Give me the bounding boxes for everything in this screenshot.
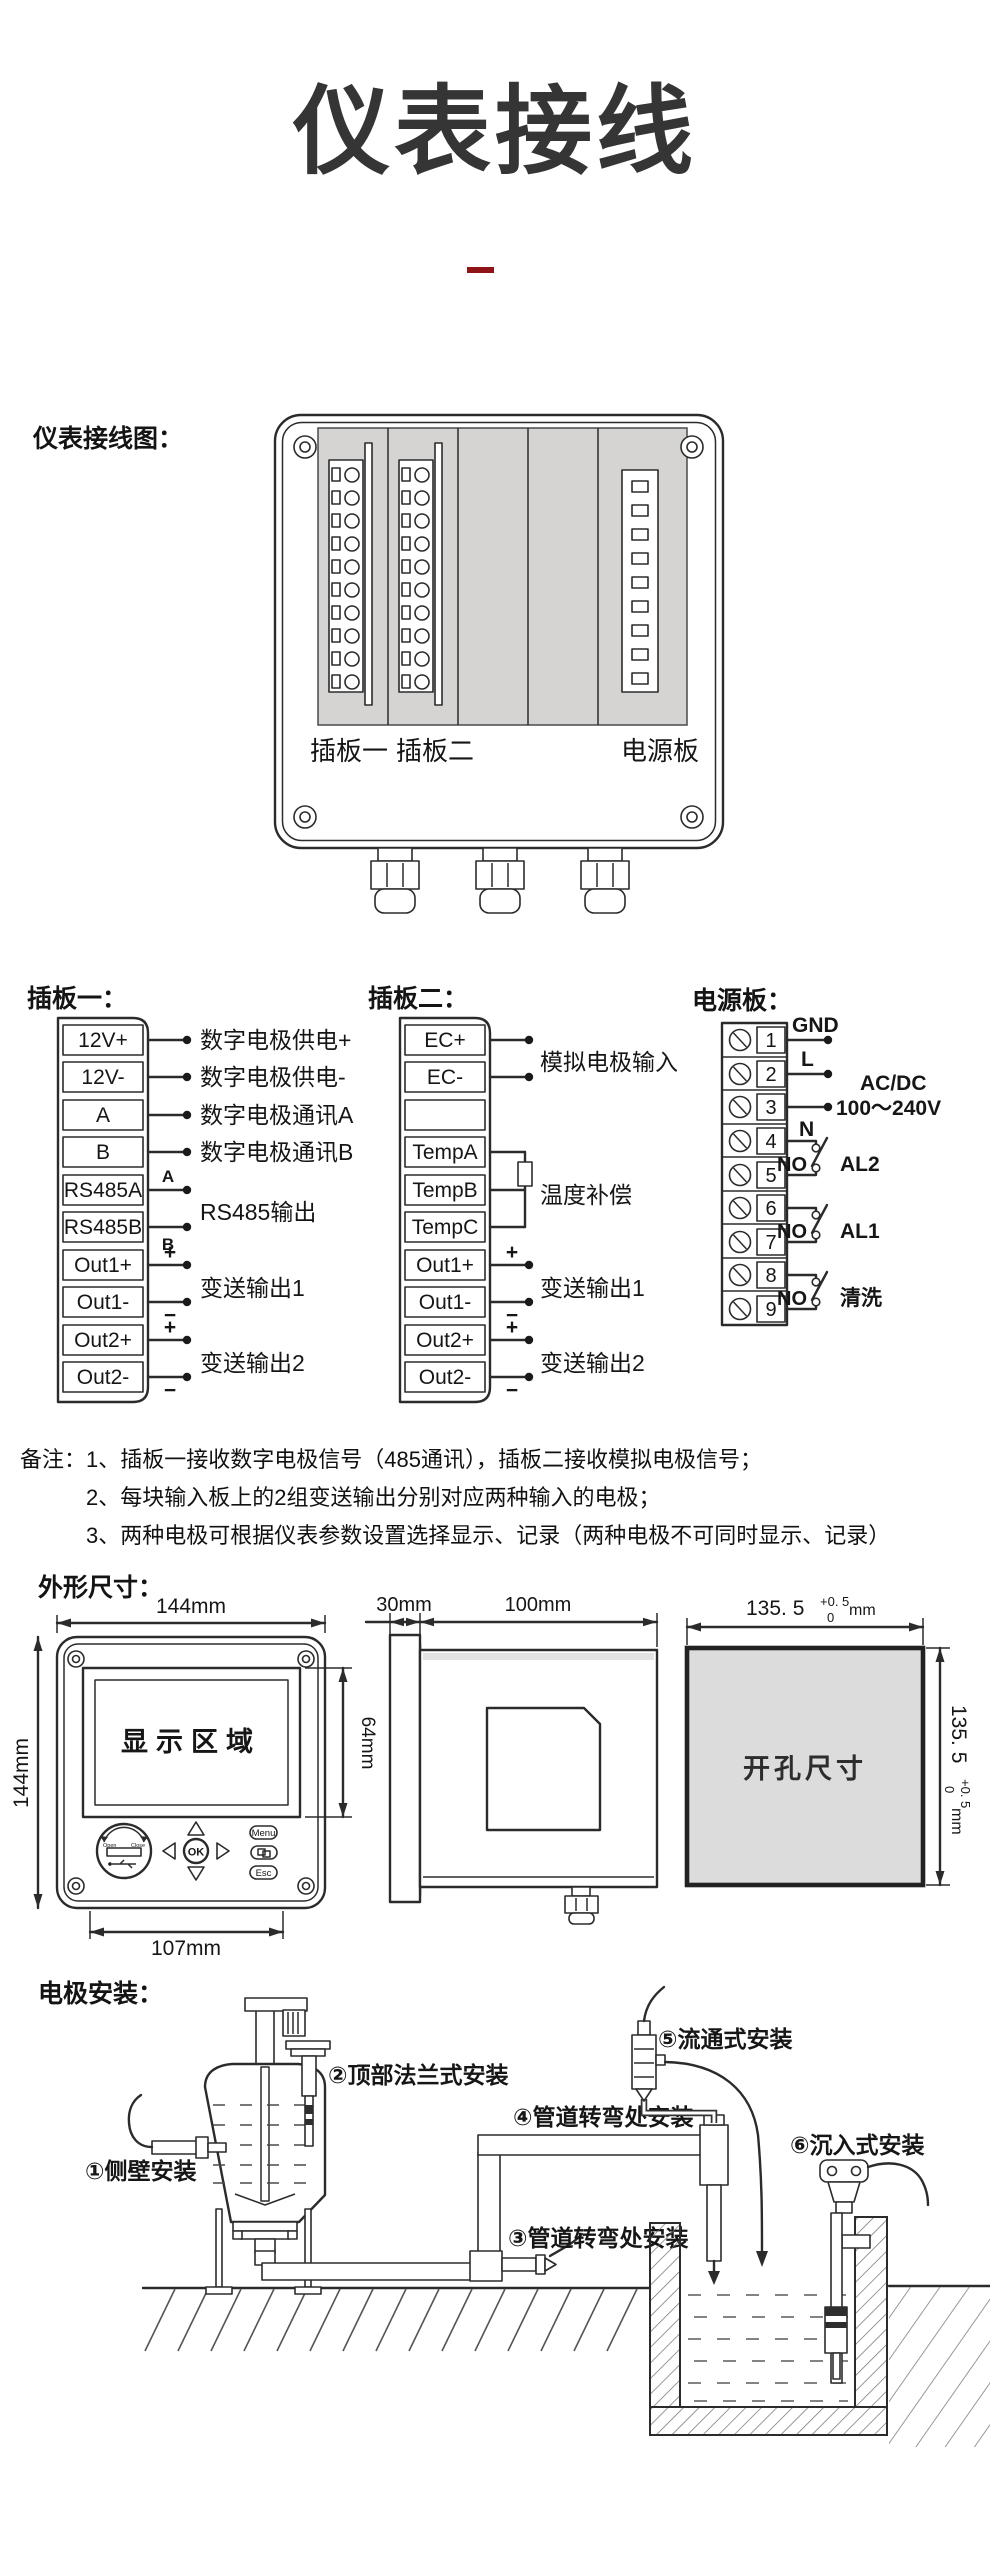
tolerance-zero: 0 xyxy=(942,1786,957,1793)
terminal-label: A xyxy=(96,1104,110,1127)
power-terminal-strip xyxy=(622,470,658,692)
front-view: 显示区域 OK Open Close Menu xyxy=(10,1595,378,1960)
note-line: 1、插板一接收数字电极信号（485通讯），插板二接收模拟电极信号； xyxy=(86,1441,762,1479)
gnd-label: GND xyxy=(792,1014,839,1037)
plus-marker: + xyxy=(506,1316,518,1339)
water xyxy=(688,2295,848,2401)
temp-compensation-resistor xyxy=(518,1162,532,1186)
ok-button-label: OK xyxy=(188,1847,205,1859)
cable xyxy=(644,1987,664,2021)
notes-head: 备注： xyxy=(20,1441,86,1479)
terminal-label: Out1+ xyxy=(74,1254,132,1277)
annotation: 数字电极供电- xyxy=(200,1064,346,1090)
menu-button-label: Menu xyxy=(252,1828,276,1839)
relay-al1: NO AL1 xyxy=(777,1205,880,1243)
annotation: 数字电极通讯B xyxy=(200,1139,353,1165)
usb-slot xyxy=(107,1848,141,1856)
board2-diagram: EC+ EC- TempA TempB TempC Out1+ Out1- Ou… xyxy=(400,1018,678,1402)
note-line: 3、两种电极可根据仪表参数设置选择显示、记录（两种电极不可同时显示、记录） xyxy=(86,1517,890,1555)
terminal-label: B xyxy=(96,1141,110,1164)
side-view: 30mm 100mm xyxy=(366,1594,657,1924)
cable-glands xyxy=(371,848,629,913)
title-accent-dash xyxy=(467,267,494,273)
cable xyxy=(868,2163,928,2205)
terminal-number: 9 xyxy=(765,1299,776,1321)
terminal-label: TempB xyxy=(412,1179,477,1202)
board1-diagram: 12V+ 12V- A B RS485A RS485B Out1+ Out1- … xyxy=(58,1018,354,1402)
terminal-label: Out2+ xyxy=(416,1329,474,1352)
width-dim: 144mm xyxy=(156,1595,226,1618)
terminal-number: 2 xyxy=(765,1064,776,1086)
bezel-dim: 30mm xyxy=(376,1594,432,1616)
terminal-number: 1 xyxy=(765,1030,776,1052)
tank-assembly xyxy=(205,1998,472,2294)
terminal-label: RS485B xyxy=(64,1216,142,1239)
note-line: 2、每块输入板上的2组变送输出分别对应两种输入的电极； xyxy=(86,1479,660,1517)
acdc-label: AC/DC xyxy=(860,1072,927,1095)
no-label: NO xyxy=(777,1288,807,1310)
installation-figure: ①侧壁安装 ②顶部法兰式安装 xyxy=(0,1955,990,2549)
wire-marker-a: A xyxy=(162,1167,174,1186)
slot1-label: 插板一 xyxy=(310,736,388,766)
terminal-label: 12V- xyxy=(81,1066,124,1089)
terminal-number: 6 xyxy=(765,1198,776,1220)
terminal-number: 8 xyxy=(765,1265,776,1287)
unit: mm xyxy=(948,1808,965,1835)
install-callout-6: ⑥沉入式安装 xyxy=(790,2132,924,2158)
no-label: NO xyxy=(777,1154,807,1176)
install-callout-4: ④管道转弯处安装 xyxy=(513,2104,693,2130)
tolerance-plus: +0. 5 xyxy=(820,1594,849,1609)
relay-wash: NO 清洗 xyxy=(777,1272,882,1310)
ground xyxy=(143,2288,650,2351)
terminal-number: 7 xyxy=(765,1232,776,1254)
terminal-number: 4 xyxy=(765,1131,776,1153)
tolerance-zero: 0 xyxy=(827,1610,834,1625)
minus-marker: − xyxy=(506,1379,518,1402)
cutout-height-value: 135. 5 xyxy=(947,1705,970,1763)
terminal-label: TempA xyxy=(412,1141,477,1164)
terminal-diagrams: 12V+ 12V- A B RS485A RS485B Out1+ Out1- … xyxy=(0,970,990,1420)
install-callout-2: ②顶部法兰式安装 xyxy=(328,2062,508,2088)
annotation: RS485输出 xyxy=(200,1199,316,1225)
terminal-label: Out1+ xyxy=(416,1254,474,1277)
pit xyxy=(650,2217,990,2447)
terminal-label: EC+ xyxy=(424,1029,465,1052)
install-callout-1: ①侧壁安装 xyxy=(85,2158,196,2184)
height-dim: 144mm xyxy=(10,1738,33,1808)
terminal-label: TempC xyxy=(412,1216,479,1239)
cutout-width-value: 135. 5 xyxy=(746,1597,804,1620)
terminal-label: Out2- xyxy=(77,1366,130,1389)
unit: mm xyxy=(849,1602,876,1619)
annotation: 变送输出2 xyxy=(200,1350,305,1376)
electrode-sidewall: ①侧壁安装 xyxy=(85,2095,226,2184)
annotation: 变送输出2 xyxy=(540,1350,645,1376)
annotation: 数字电极通讯A xyxy=(200,1102,354,1128)
terminal-label: RS485A xyxy=(64,1179,142,1202)
depth-dim: 100mm xyxy=(505,1594,572,1616)
al1-label: AL1 xyxy=(840,1220,880,1243)
slot2-label: 插板二 xyxy=(396,736,474,766)
esc-button-label: Esc xyxy=(256,1868,272,1879)
annotation: 数字电极供电+ xyxy=(200,1027,351,1053)
annotation: 变送输出1 xyxy=(200,1275,305,1301)
al2-label: AL2 xyxy=(840,1153,880,1176)
terminal-number: 5 xyxy=(765,1165,776,1187)
power-diagram: 1 2 3 4 5 6 7 8 9 GND L N AC/DC 100～240V… xyxy=(722,1014,941,1325)
neutral-label: N xyxy=(799,1118,814,1141)
device-figure: 插板一 插板二 电源板 xyxy=(265,405,735,950)
plus-marker: + xyxy=(164,1241,176,1264)
terminal-label: EC- xyxy=(427,1066,463,1089)
terminal-number: 3 xyxy=(765,1097,776,1119)
manual-page: 仪表接线 仪表接线图： xyxy=(0,0,990,2549)
cable xyxy=(129,2095,152,2147)
screen-height-dim: 64mm xyxy=(357,1717,378,1770)
line-label: L xyxy=(801,1048,814,1071)
annotation: 模拟电极输入 xyxy=(540,1049,678,1075)
plus-marker: + xyxy=(506,1241,518,1264)
slot1-terminal-strip xyxy=(329,443,372,705)
wash-label: 清洗 xyxy=(840,1286,882,1310)
relay-al2: NO AL2 xyxy=(777,1138,880,1176)
annotation: 变送输出1 xyxy=(540,1275,645,1301)
slot2-terminal-strip xyxy=(399,443,442,705)
install-callout-5: ⑤流通式安装 xyxy=(658,2026,792,2052)
power-slot-label: 电源板 xyxy=(621,736,699,766)
cutout-label: 开孔尺寸 xyxy=(743,1754,867,1784)
terminal-label: Out1- xyxy=(419,1291,472,1314)
terminal-label: Out2+ xyxy=(74,1329,132,1352)
side-gland xyxy=(565,1887,598,1924)
notes-block: 备注：1、插板一接收数字电极信号（485通讯），插板二接收模拟电极信号； 2、每… xyxy=(20,1441,890,1555)
terminal-label: 12V+ xyxy=(78,1029,128,1052)
tolerance-plus: +0. 5 xyxy=(958,1779,973,1808)
terminal-label: Out1- xyxy=(77,1291,130,1314)
ground-right xyxy=(889,2287,990,2447)
dimensions-figure: 显示区域 OK Open Close Menu xyxy=(0,1555,990,1960)
plus-marker: + xyxy=(164,1316,176,1339)
minus-marker: − xyxy=(164,1379,176,1402)
cutout-view: 开孔尺寸 135. 5 +0. 5 0 mm 135. 5 +0. 5 0 mm xyxy=(687,1594,973,1885)
terminal-label: Out2- xyxy=(419,1366,472,1389)
display-area-label: 显示区域 xyxy=(121,1727,261,1757)
annotation: 温度补偿 xyxy=(540,1182,632,1208)
no-label: NO xyxy=(777,1221,807,1243)
voltage-label: 100～240V xyxy=(836,1097,941,1120)
wiring-diagram-label: 仪表接线图： xyxy=(33,419,183,455)
page-title: 仪表接线 xyxy=(0,52,990,193)
